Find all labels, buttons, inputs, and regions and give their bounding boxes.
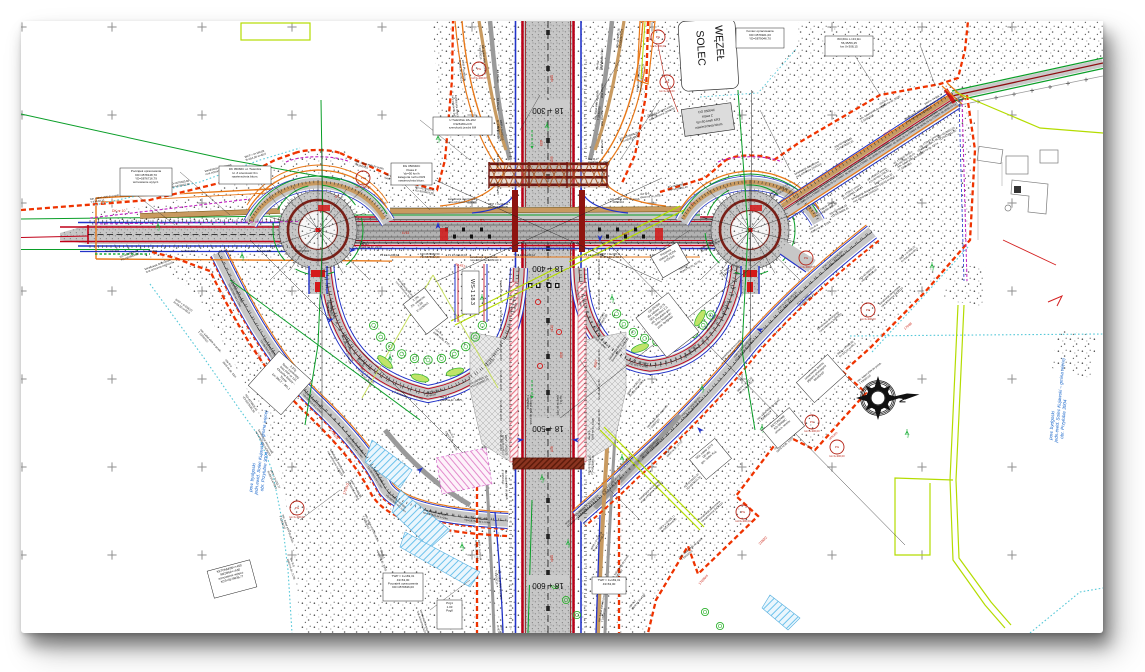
svg-text:YD=5878962,20: YD=5878962,20 xyxy=(420,255,440,259)
svg-text:PG: PG xyxy=(835,445,840,449)
svg-text:Wsk 18+200: Wsk 18+200 xyxy=(600,55,604,70)
svg-text:P2 km 0+240,12: P2 km 0+240,12 xyxy=(516,253,536,257)
svg-text:P3 km 0+340,12: P3 km 0+340,12 xyxy=(584,253,604,257)
svg-text:WĘZEŁ: WĘZEŁ xyxy=(712,25,726,62)
svg-text:A55: A55 xyxy=(539,140,543,146)
svg-text:P1 km 0+140,12: P1 km 0+140,12 xyxy=(448,253,468,257)
svg-text:Wsk 18+230: Wsk 18+230 xyxy=(600,139,604,154)
svg-text:PG: PG xyxy=(804,256,809,260)
svg-text:km 0+300,00: km 0+300,00 xyxy=(289,515,305,519)
svg-text:o160: o160 xyxy=(550,75,554,82)
svg-text:hm 18+450 sk=60: hm 18+450 sk=60 xyxy=(499,430,503,451)
svg-text:rura ochronna 2xDN110: rura ochronna 2xDN110 xyxy=(448,200,477,204)
svg-text:DK nr 10: DK nr 10 xyxy=(112,209,125,213)
svg-text:Kd 18+220: Kd 18+220 xyxy=(496,126,500,139)
svg-text:hm 18+440 sk=60: hm 18+440 sk=60 xyxy=(499,400,503,421)
svg-text:hm 4 R=900: hm 4 R=900 xyxy=(257,249,272,253)
svg-text:YD=5878888,15: YD=5878888,15 xyxy=(590,455,595,475)
svg-text:Kd 18+200: Kd 18+200 xyxy=(496,70,500,83)
svg-text:PG: PG xyxy=(741,510,746,514)
svg-text:hm 0 R=900: hm 0 R=900 xyxy=(105,249,120,253)
svg-text:S7: S7 xyxy=(335,195,339,199)
svg-text:18 + 400: 18 + 400 xyxy=(532,264,564,273)
svg-text:T 33/50/110: T 33/50/110 xyxy=(526,395,530,410)
svg-text:PG: PG xyxy=(477,67,482,71)
svg-text:PG: PG xyxy=(361,176,366,180)
svg-text:P1: P1 xyxy=(480,219,484,223)
svg-text:hm 5 R=900: hm 5 R=900 xyxy=(295,249,310,253)
svg-text:PzgII: PzgII xyxy=(446,608,453,612)
svg-text:PG: PG xyxy=(866,308,871,312)
svg-text:17090/4: 17090/4 xyxy=(698,574,709,586)
svg-text:Wsk 18+210: Wsk 18+210 xyxy=(600,83,604,98)
svg-text:km 0+300,00: km 0+300,00 xyxy=(355,185,371,189)
svg-text:km 0+300,00: km 0+300,00 xyxy=(471,76,487,80)
svg-text:43=63,00: 43=63,00 xyxy=(603,582,616,586)
svg-text:km 0+300,00: km 0+300,00 xyxy=(735,519,751,523)
svg-text:A58: A58 xyxy=(559,352,563,358)
svg-text:km 0+300,00: km 0+300,00 xyxy=(798,265,814,269)
svg-text:hm 18+440 sk=60: hm 18+440 sk=60 xyxy=(597,379,601,400)
svg-text:PG: PG xyxy=(295,506,300,510)
svg-text:zjazd na dz. 227/7: zjazd na dz. 227/7 xyxy=(360,245,382,249)
svg-text:T 33/50/110: T 33/50/110 xyxy=(610,200,625,204)
svg-text:Kd 18+230: Kd 18+230 xyxy=(496,154,500,167)
svg-text:zjazd na dz. 152/5: zjazd na dz. 152/5 xyxy=(590,418,595,440)
svg-text:T 33/50/110: T 33/50/110 xyxy=(501,470,506,485)
svg-text:o160: o160 xyxy=(550,555,554,562)
svg-text:km 0+300,00: km 0+300,00 xyxy=(659,89,675,93)
svg-text:hm 18+450 sk=60: hm 18+450 sk=60 xyxy=(597,409,601,430)
svg-text:hm 3 R=900: hm 3 R=900 xyxy=(219,249,234,253)
svg-text:kanalizacja deszczowa: kanalizacja deszczowa xyxy=(548,637,576,641)
svg-text:wznowienie wytycz.: wznowienie wytycz. xyxy=(133,180,159,184)
svg-text:P0 km 0+040,12: P0 km 0+040,12 xyxy=(380,253,400,257)
svg-text:hm 18+430 sk=60: hm 18+430 sk=60 xyxy=(499,370,503,391)
svg-text:A58: A58 xyxy=(550,446,554,452)
svg-text:zjazd na dz. 182/5: zjazd na dz. 182/5 xyxy=(440,398,462,402)
svg-text:PG: PG xyxy=(656,35,661,39)
svg-text:rura ochronna 2xDN110: rura ochronna 2xDN110 xyxy=(548,640,577,644)
svg-text:KD=4579636,00: KD=4579636,00 xyxy=(392,585,414,589)
svg-text:hm 18+400 sk=60: hm 18+400 sk=60 xyxy=(499,280,503,301)
svg-text:km 0+300,00: km 0+300,00 xyxy=(829,454,845,458)
svg-text:ziel: ziel xyxy=(905,433,910,438)
svg-text:hm 2 R=900: hm 2 R=900 xyxy=(181,249,196,253)
svg-text:WS-1 18.3: WS-1 18.3 xyxy=(469,279,475,305)
svg-text:zjazd na dz. 292/3: zjazd na dz. 292/3 xyxy=(588,160,610,164)
svg-text:nawierzchnia bitum.: nawierzchnia bitum. xyxy=(232,174,259,178)
svg-text:szerokość jezdni 6M: szerokość jezdni 6M xyxy=(449,125,477,129)
svg-text:SOLEC: SOLEC xyxy=(693,30,707,67)
svg-text:km 0+300,00: km 0+300,00 xyxy=(860,317,876,321)
svg-text:18 + 500: 18 + 500 xyxy=(532,424,564,433)
svg-text:2180/2: 2180/2 xyxy=(758,535,768,545)
svg-text:Kd 18+240: Kd 18+240 xyxy=(496,182,500,195)
svg-text:Wsk 18+220: Wsk 18+220 xyxy=(600,111,604,126)
svg-text:R=174,00 w=60,0: R=174,00 w=60,0 xyxy=(600,255,622,259)
svg-text:YD=5879046,70: YD=5879046,70 xyxy=(749,36,771,40)
svg-text:rura ochronna 2xDN110: rura ochronna 2xDN110 xyxy=(470,258,499,262)
svg-text:Wsk 18+240: Wsk 18+240 xyxy=(600,167,604,182)
svg-text:hm 18+420 sk=60: hm 18+420 sk=60 xyxy=(597,319,601,340)
svg-text:km 0+300,00: km 0+300,00 xyxy=(804,429,820,433)
svg-text:hm 1 R=900: hm 1 R=900 xyxy=(143,249,158,253)
svg-text:kV15: kV15 xyxy=(402,231,409,235)
svg-text:R=69,00 w=60,0: R=69,00 w=60,0 xyxy=(488,205,508,209)
svg-text:hm 18+400 sk=60: hm 18+400 sk=60 xyxy=(597,259,601,280)
svg-text:Kd 18+210: Kd 18+210 xyxy=(496,98,500,111)
svg-text:hm 18+430 sk=60: hm 18+430 sk=60 xyxy=(597,349,601,370)
svg-text:A55: A55 xyxy=(550,156,554,162)
svg-text:hm 18+410 sk=60: hm 18+410 sk=60 xyxy=(597,289,601,310)
svg-text:PG: PG xyxy=(810,420,815,424)
svg-text:P2: P2 xyxy=(628,219,632,223)
svg-text:zjazd na dz. 22/4: zjazd na dz. 22/4 xyxy=(556,395,560,416)
svg-text:18 + 300: 18 + 300 xyxy=(532,106,564,115)
svg-text:o110: o110 xyxy=(550,325,554,332)
svg-text:km 0+308,15: km 0+308,15 xyxy=(840,44,858,48)
svg-text:hm 18+410 sk=60: hm 18+410 sk=60 xyxy=(499,310,503,331)
svg-text:nawierzchnia bitum.: nawierzchnia bitum. xyxy=(398,179,425,183)
svg-text:17088: 17088 xyxy=(903,322,913,331)
svg-text:18 + 600: 18 + 600 xyxy=(532,581,564,590)
